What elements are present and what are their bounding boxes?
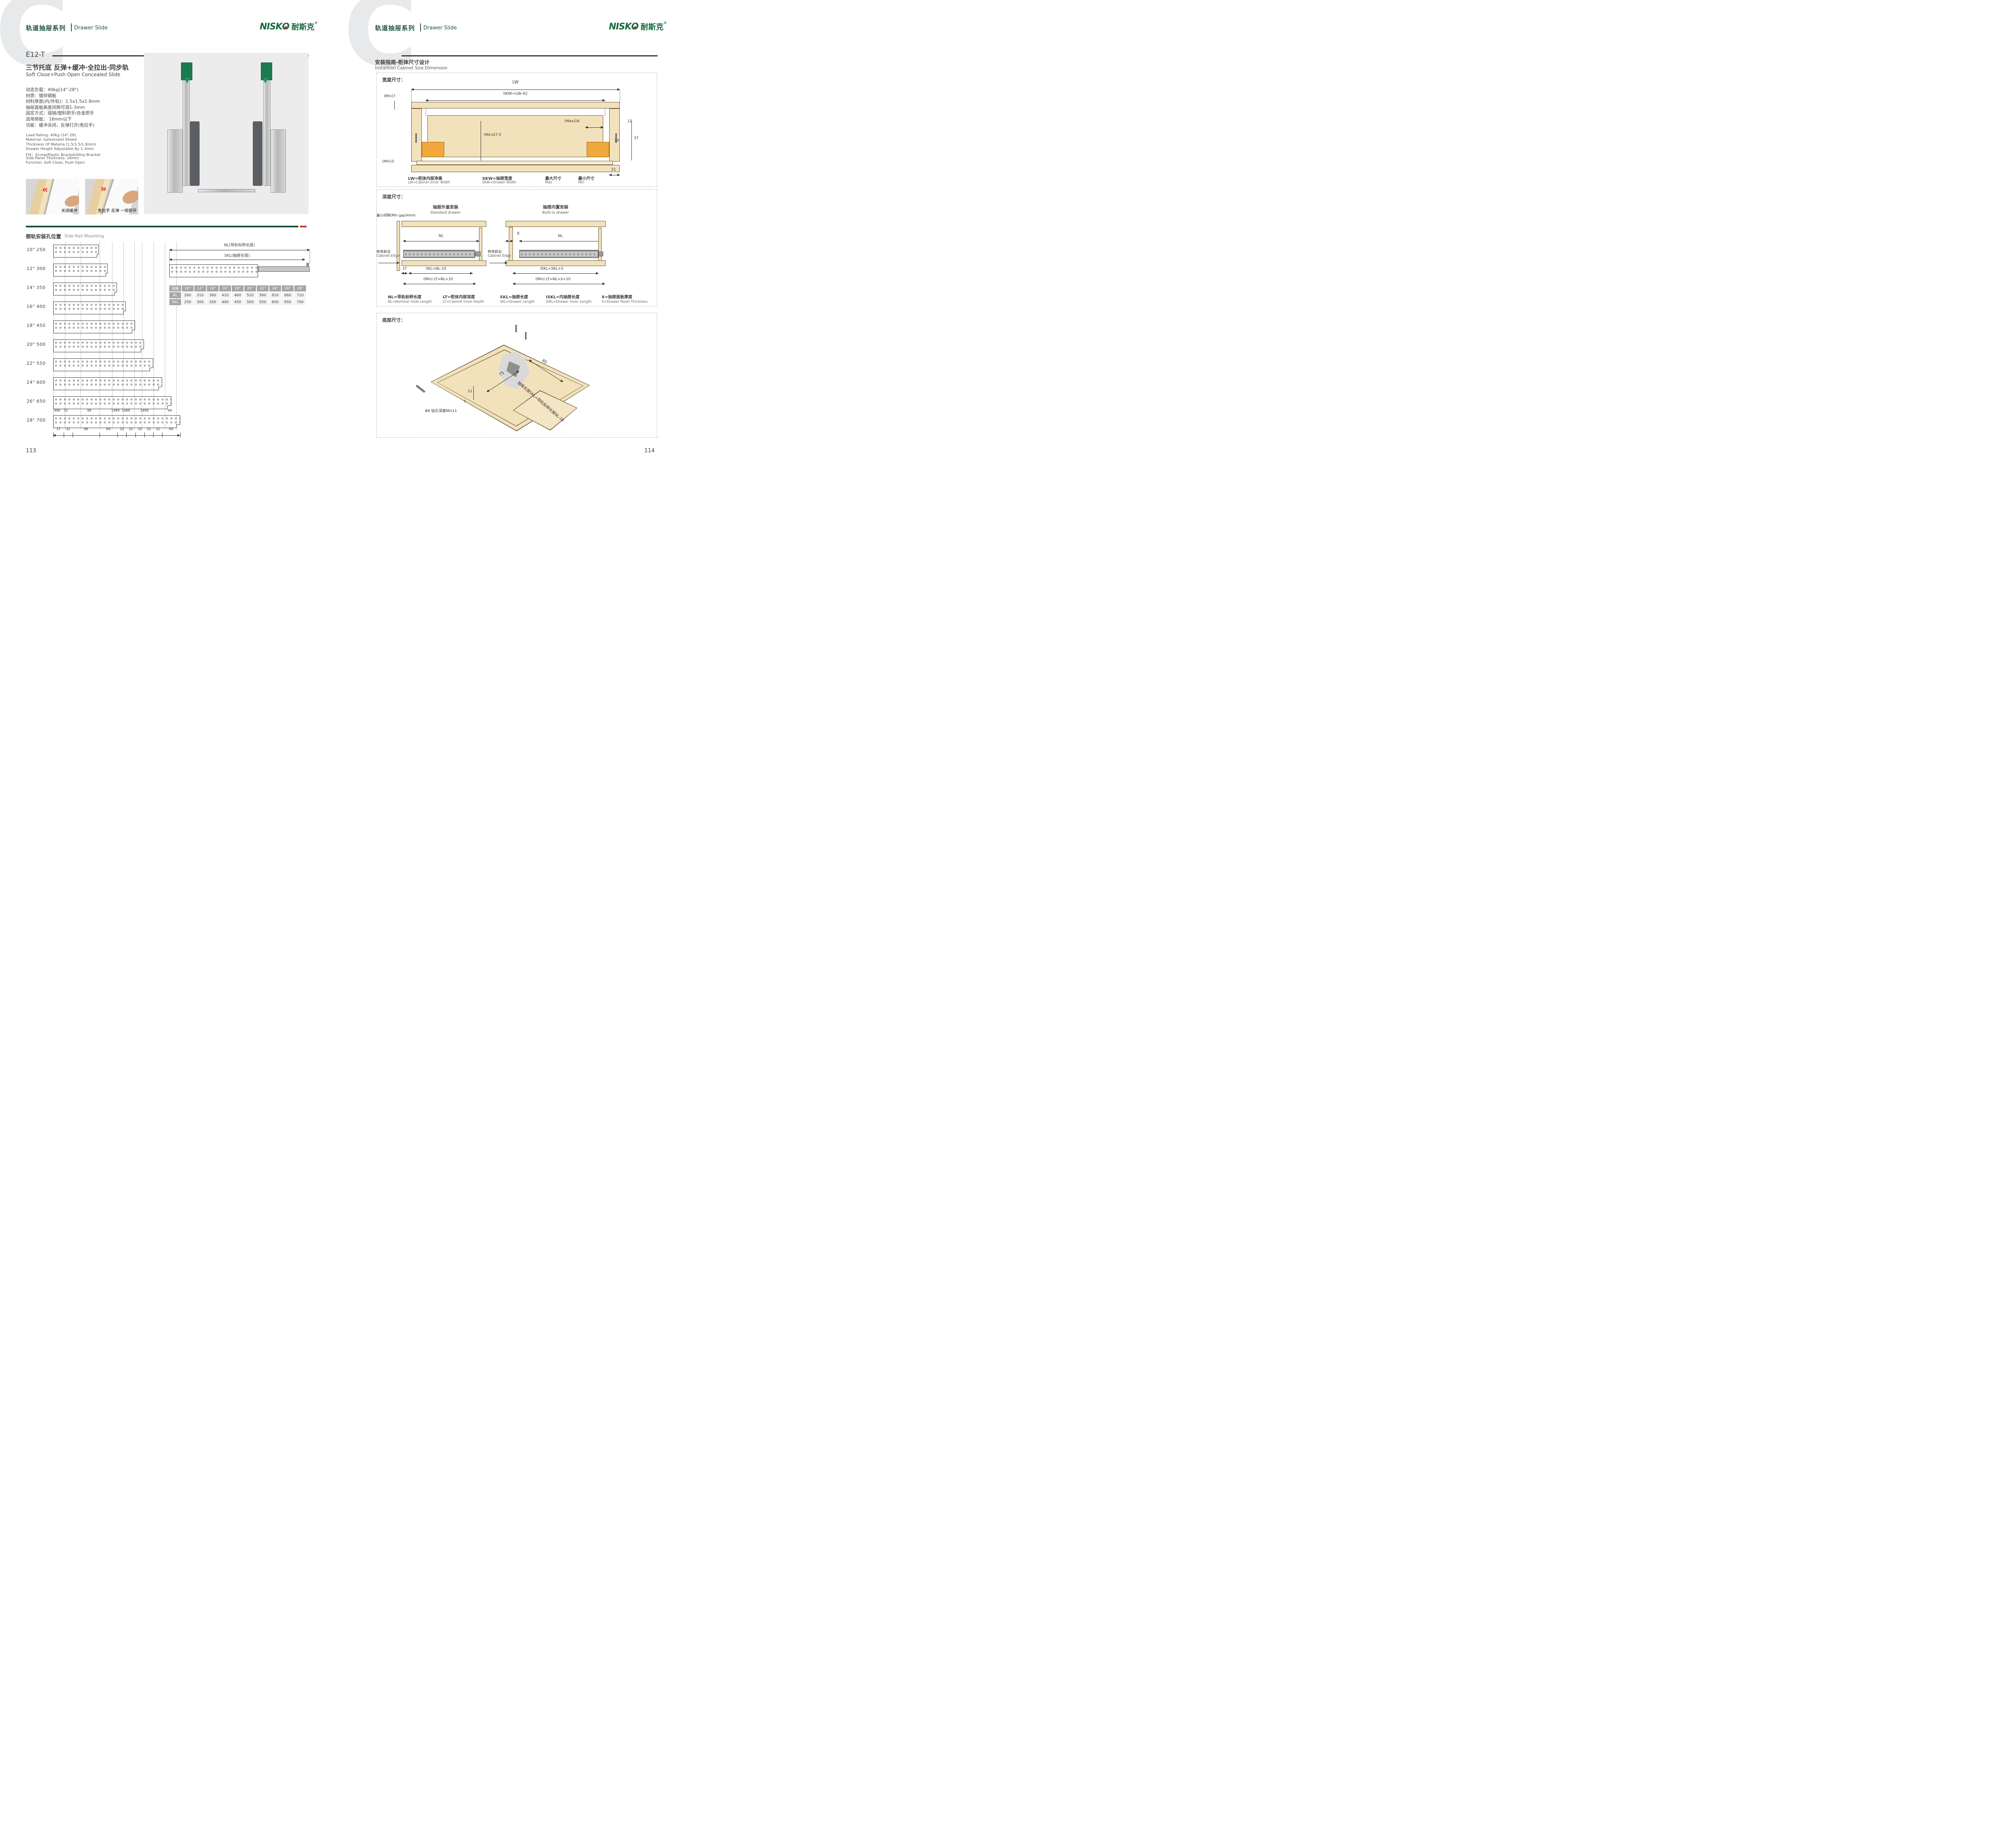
spec-line-en: Function: Soft Close, Push Open — [26, 160, 85, 165]
spec-line-en: Side Panel Thickness: 16mm — [26, 156, 79, 160]
spec-line-zh: 功能：缓冲关闭，反弹打开(免拉手) — [26, 122, 94, 128]
dim-min275: (Min)27.5 — [484, 133, 501, 137]
bottom-dim-value: 32 — [144, 427, 153, 431]
slide-left-mount-plate — [167, 129, 183, 193]
dim-37: 37 — [634, 136, 638, 140]
table-nl-cell: 410 — [219, 292, 231, 298]
bottom-dim-value: 32 — [153, 427, 162, 431]
header-rule — [402, 55, 658, 56]
dimline-lt-builtin — [513, 284, 605, 284]
width-box-label: 宽度尺寸： — [382, 77, 406, 83]
dim-tick — [73, 433, 73, 437]
spec-line-en: Thickness Of Materia (1.5/1.5/1.8mm) — [26, 142, 96, 147]
bottom-dim-value: 32 — [135, 427, 144, 431]
depth-legend-zh: LT=柜体内部深度 — [443, 293, 475, 300]
depth-legend-en: X=Drawer Panel Thickness — [602, 300, 648, 304]
grid-line — [81, 242, 81, 430]
rail-diagram-hook — [306, 263, 309, 267]
depth-legend-en: SKL=Drawer Length — [500, 300, 535, 304]
slide-right-mount-plate — [271, 129, 286, 193]
rail-row-strip — [53, 254, 97, 258]
rail-row-drawing — [53, 283, 117, 292]
rail-row-strip — [53, 368, 150, 371]
cabinet-bottom — [506, 260, 606, 266]
screw-icon — [415, 133, 417, 143]
screw-icon — [525, 332, 527, 339]
table-header-cell: 18" — [232, 285, 244, 291]
table-header-cell: 16" — [219, 285, 231, 291]
rail-row-strip — [53, 349, 141, 352]
depth-box-label: 深度尺寸： — [382, 193, 406, 200]
hole-pitch-dim: 999 — [54, 409, 60, 412]
install-guide-title-zh: 安装指南-柜体尺寸设计 — [375, 58, 429, 66]
table-skl-cell: 300 — [194, 299, 206, 305]
rail-row-label: 20" 500 — [27, 342, 46, 347]
slide-right-rail — [263, 64, 271, 186]
builtin-title-en: Built-in drawer — [506, 211, 606, 215]
rail-row-drawing — [53, 377, 162, 387]
table-header-cell: 14" — [207, 285, 219, 291]
dim-lt-standard: (Min) LT=NL+10 — [423, 277, 453, 281]
grid-line — [134, 242, 135, 430]
slide-hardware-left — [422, 142, 444, 157]
builtin-title-zh: 抽屉内置安装 — [506, 204, 606, 210]
dim-7: 7 — [464, 400, 466, 404]
product-subtitle-en: Soft Close+Push Open Concealed Slide — [26, 72, 121, 77]
table-nl-cell: 710 — [294, 292, 306, 298]
slide-hardware-right — [587, 142, 609, 157]
dim-tick — [117, 433, 118, 437]
cabinet-bottom-board — [411, 165, 620, 172]
cabinet-bottom — [402, 260, 486, 266]
min-gap-label: 最小间隙(Min gap)4mm — [377, 213, 415, 218]
side-rail-title-en: Side Rail Mounting — [65, 234, 104, 239]
page-title-zh: 轨道抽屉系列 — [26, 23, 66, 32]
brand-logo: NISKO 耐斯克® — [260, 21, 318, 32]
spec-line-zh: 抽屉面板高度间隙可调1-3mm — [26, 104, 85, 110]
table-header-cell: 22" — [257, 285, 269, 291]
table-header-cell: 10" — [182, 285, 194, 291]
feature-photo-soft-close: « 关闭缓冲 — [26, 179, 79, 214]
table-skl-cell: 550 — [257, 299, 269, 305]
bottom-dim-value: 64 — [162, 427, 180, 431]
product-subtitle-zh: 三节托底 反弹+缓冲·全拉出·同步轨 — [26, 62, 129, 72]
drill-note: Φ6 钻孔深度Min11 — [425, 408, 457, 413]
table-row-label: NL — [169, 292, 181, 298]
bottom-dim-value: 96 — [73, 427, 100, 431]
hole-pitch-dim: 1499 — [111, 409, 119, 412]
dim-tick — [135, 433, 136, 437]
brand-logo: NISKO 耐斯克® — [609, 21, 667, 32]
depth-legend-zh: X=抽屉面板厚度 — [602, 293, 632, 300]
rail-row-strip — [53, 273, 106, 277]
table-skl-cell: 350 — [207, 299, 219, 305]
table-header-cell: 规格 — [169, 285, 181, 291]
section-divider-green — [26, 226, 298, 227]
rail-row-label: 14" 350 — [27, 285, 46, 290]
cabinet-edge-zh: 柜体前沿 — [488, 249, 502, 254]
bottom-box-label: 底部尺寸： — [382, 317, 406, 323]
width-legend-en: SKW=Drawer Width — [482, 181, 516, 185]
dim-max16: (Max)16 — [564, 119, 579, 123]
slide-right-green-connector — [261, 62, 272, 80]
rail-row-drawing — [53, 245, 99, 254]
dim-tick — [162, 433, 162, 437]
dim-21: 21 — [611, 168, 616, 172]
table-header-cell: 20" — [244, 285, 256, 291]
dim-tick — [153, 433, 154, 437]
dimline-skl — [409, 273, 473, 274]
dimline-iskl — [513, 273, 598, 274]
grid-line — [154, 242, 154, 430]
rail-row-label: 28" 700 — [27, 418, 46, 423]
dimline-21 — [609, 175, 620, 175]
registered-mark: ® — [664, 21, 667, 25]
table-nl-cell: 660 — [282, 292, 294, 298]
size-spec-table: 规格10"12"14"16"18"20"22"24"26"28"NL260310… — [169, 285, 307, 306]
cabinet-edge-en: Cabinet Edge — [377, 254, 400, 258]
dim-37-depth: 37 — [402, 267, 407, 271]
dim-tick — [144, 433, 145, 437]
rail-diagram-inner — [258, 266, 310, 272]
table-nl-cell: 460 — [232, 292, 244, 298]
table-header-cell: 12" — [194, 285, 206, 291]
dimline-nl-standard — [403, 241, 479, 241]
soft-close-arrows-icon: « — [42, 184, 48, 195]
screw-icon — [515, 325, 517, 332]
rail-row-strip — [53, 387, 159, 390]
logo-text: NISKO — [609, 22, 638, 32]
rail-row-label: 26" 650 — [27, 399, 46, 404]
cabinet-edge-zh: 柜体前沿 — [377, 249, 390, 254]
dim-skw: SKW=LW-42 — [426, 92, 605, 96]
sync-rod — [198, 189, 255, 192]
rail-row-label: 22" 550 — [27, 361, 46, 366]
slide-rail-drawing — [519, 250, 598, 258]
hole-pitch-dim: 99 — [87, 409, 91, 412]
spec-line-en: Drawer Height Adjustable By 1-3mm — [26, 147, 94, 151]
product-photo — [144, 53, 308, 214]
logo-red-dot — [285, 26, 287, 29]
table-row-label: SKL — [169, 299, 181, 305]
registered-mark: ® — [314, 21, 318, 25]
table-skl-cell: 250 — [182, 299, 194, 305]
rail-row-label: 24" 600 — [27, 380, 46, 385]
spec-line-zh: 材料厚度(内/外轨)：1.5x1.5x1.8mm — [26, 98, 100, 104]
bottom-dim-value: 37 — [53, 427, 64, 431]
spec-line-zh: 固定方式：插销/塑料把手/合金把手 — [26, 110, 94, 116]
standard-title-en: Standard drawer — [403, 211, 488, 215]
standard-title-zh: 抽屉外盖安装 — [403, 204, 488, 210]
spec-line-zh: 材质：镀锌钢板 — [26, 92, 56, 99]
table-nl-cell: 610 — [269, 292, 281, 298]
slide-right-plastic-block — [253, 121, 262, 186]
table-skl-cell: 500 — [244, 299, 256, 305]
spec-line-en: Load Rating: 40kg (14"-28) — [26, 133, 76, 137]
width-legend-en: LW=Cabinet Inner Width — [408, 181, 450, 185]
spec-line-en: Material: Galvanized Sheed — [26, 137, 77, 142]
bottom-dim-value: 32 — [126, 427, 135, 431]
dim-min3: (Min)3 — [382, 160, 394, 164]
width-legend-en: Min — [578, 181, 584, 185]
page-number-left: 113 — [26, 447, 36, 454]
rail-row-drawing — [53, 415, 180, 425]
table-skl-cell: 400 — [219, 299, 231, 305]
dim-lw: LW — [411, 80, 620, 85]
rail-row-drawing — [53, 302, 126, 311]
dim-nl-standard: NL — [403, 234, 479, 238]
logo-text: NISKO — [260, 22, 289, 32]
rail-row-strip — [53, 311, 124, 314]
rail-row-label: 10" 250 — [27, 247, 46, 252]
table-nl-cell: 360 — [207, 292, 219, 298]
rail-row-strip — [53, 292, 115, 295]
page-title-zh: 轨道抽屉系列 — [375, 23, 415, 32]
dim-iskl: ISKL=SKL+X — [540, 267, 563, 271]
table-nl-cell: 260 — [182, 292, 194, 298]
bottom-dim-value: 32 — [64, 427, 73, 431]
table-nl-cell: 510 — [244, 292, 256, 298]
table-nl-cell: 310 — [194, 292, 206, 298]
grid-line — [112, 242, 112, 430]
grid-line — [65, 242, 65, 430]
rail-row-drawing — [53, 320, 135, 330]
width-legend-zh: LW=柜体内部净高 — [408, 175, 442, 181]
width-legend-en: Max — [545, 181, 552, 185]
nl-dimline — [169, 250, 310, 250]
width-legend-zh: SKW=抽屉宽度 — [482, 175, 512, 181]
nl-dim-label: NL(导轨标称长度) — [169, 242, 310, 248]
table-skl-cell: 450 — [232, 299, 244, 305]
cabinet-top — [506, 221, 606, 227]
rail-end-bracket — [475, 252, 481, 256]
dim-tick — [126, 433, 127, 437]
table-header-cell: 24" — [269, 285, 281, 291]
page-title-en: Drawer Slide — [74, 25, 108, 31]
depth-legend-zh: SKL=抽屉长度 — [500, 293, 528, 300]
table-header-cell: 26" — [282, 285, 294, 291]
table-skl-cell: 650 — [282, 299, 294, 305]
rail-row-label: 18" 450 — [27, 323, 46, 328]
push-open-arrows-icon: » — [100, 183, 107, 194]
dimline-lt — [403, 284, 476, 284]
dimline-lw — [411, 89, 620, 90]
logo-zh: 耐斯克 — [641, 23, 664, 31]
grid-line — [176, 242, 177, 430]
hole-pitch-dim: 1499 — [140, 409, 148, 412]
rail-diagram-body — [169, 264, 258, 274]
slide-rail-drawing — [403, 250, 475, 258]
bottom-dim-value: 32 — [117, 427, 126, 431]
grid-line — [142, 242, 142, 430]
logo-zh: 耐斯克 — [292, 23, 314, 31]
header-divider — [71, 23, 72, 31]
dimline-nl-builtin — [519, 241, 602, 241]
cabinet-top — [402, 221, 486, 227]
width-legend-zh: 最大尺寸 — [545, 175, 561, 181]
rail-row-label: 16" 400 — [27, 304, 46, 309]
hole-pitch-dim: 1499 — [122, 409, 130, 412]
rail-diagram-strip — [169, 274, 258, 277]
dim-11: 11 — [468, 389, 472, 393]
grid-line — [100, 242, 100, 430]
cabinet-right-side — [609, 108, 620, 162]
photo-caption: 关闭缓冲 — [61, 207, 77, 213]
table-header-cell: 28" — [294, 285, 306, 291]
cabinet-top-board — [411, 102, 620, 108]
depth-legend-en: ISKL=Drawer Inner Length — [546, 300, 591, 304]
dim-min7: (Min)7 — [384, 94, 396, 98]
dim-tick — [100, 433, 100, 437]
rail-row-label: 12" 300 — [27, 266, 46, 271]
table-nl-cell: 560 — [257, 292, 269, 298]
bottom-dim-value: 64 — [100, 427, 117, 431]
rail-row-drawing — [53, 358, 153, 368]
grid-line — [165, 242, 165, 430]
dimline-skw — [426, 100, 605, 101]
table-skl-cell: 700 — [294, 299, 306, 305]
dim-tick — [64, 433, 64, 437]
dim-skl-standard: SKL=NL-10 — [426, 267, 446, 271]
grid-line — [123, 242, 124, 430]
edge-arrow — [378, 263, 399, 263]
slide-left-plastic-block — [190, 121, 200, 186]
dim-lt-builtin: (Min) LT=NL+X+10 — [535, 277, 571, 281]
hole-pitch-dim: 99 — [168, 409, 172, 412]
table-skl-cell: 600 — [269, 299, 281, 305]
rail-row-drawing — [53, 339, 144, 349]
hole-pitch-dim: 32 — [64, 409, 68, 412]
slide-left-rail — [183, 64, 190, 186]
side-rail-title-zh: 侧轨安装孔位置 — [26, 232, 61, 240]
model-code: E12-T — [26, 51, 45, 59]
slide-left-green-connector — [181, 62, 192, 80]
install-guide-title-en: Installtion Cabinet Size Dimension — [375, 66, 448, 71]
photo-caption: 免拉手 反弹 一按即开 — [98, 207, 137, 213]
dimline-max16 — [585, 127, 603, 128]
cabinet-bottom-inner — [417, 161, 613, 165]
spec-line-zh: 动态负载：40kg(14"-28") — [26, 86, 79, 93]
dim-nl-builtin: NL — [519, 234, 602, 238]
cabinet-edge-en: Cabinet Edge — [488, 254, 511, 258]
rail-end-bracket — [598, 252, 603, 256]
spec-line-zh: 适用侧板： 16mm以下 — [26, 116, 72, 122]
dim-10: 10 — [614, 139, 619, 143]
page-title-en: Drawer Slide — [423, 25, 457, 31]
rail-row-strip — [53, 406, 168, 409]
skl-dim-label: SKL(抽屉长度) — [169, 252, 305, 258]
grid-line — [53, 242, 54, 430]
skl-dimline — [169, 260, 305, 260]
section-divider-red — [300, 226, 306, 227]
dim-tick — [180, 433, 181, 437]
dim-tick — [53, 433, 54, 437]
page-number-right: 114 — [644, 447, 655, 454]
dimline-37 — [402, 273, 407, 274]
depth-legend-en: NL=Nominal Slide Length — [388, 300, 432, 304]
depth-legend-en: LT=Cabinet Inner Depth — [443, 300, 484, 304]
depth-legend-zh: ISKL=内抽屉长度 — [546, 293, 579, 300]
header-divider — [420, 23, 421, 31]
width-legend-zh: 最小尺寸 — [578, 175, 594, 181]
isometric-drawing: 75 85 11 7 Φ6 钻孔深度Min11 抽屉长度SKL=导轨标称长度NL… — [419, 322, 621, 433]
edge-arrow — [489, 263, 507, 263]
logo-red-dot — [634, 26, 636, 29]
depth-legend-zh: NL=导轨标称长度 — [388, 293, 421, 300]
feature-photo-push-open: » 免拉手 反弹 一按即开 — [85, 179, 138, 214]
catalog-spread: C 轨道抽屉系列 Drawer Slide NISKO 耐斯克® E12-T 三… — [0, 0, 677, 462]
dimline-x — [506, 241, 513, 241]
